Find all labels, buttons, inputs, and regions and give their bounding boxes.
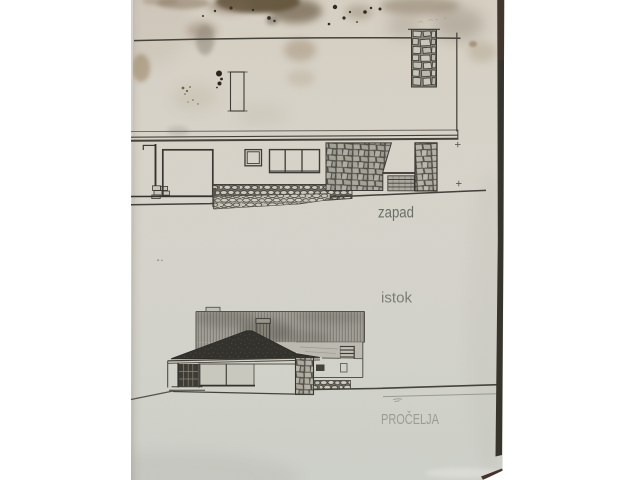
- svg-text:PROČELJA: PROČELJA: [381, 411, 439, 428]
- svg-text:istok: istok: [381, 290, 413, 307]
- svg-text:zapad: zapad: [378, 205, 414, 222]
